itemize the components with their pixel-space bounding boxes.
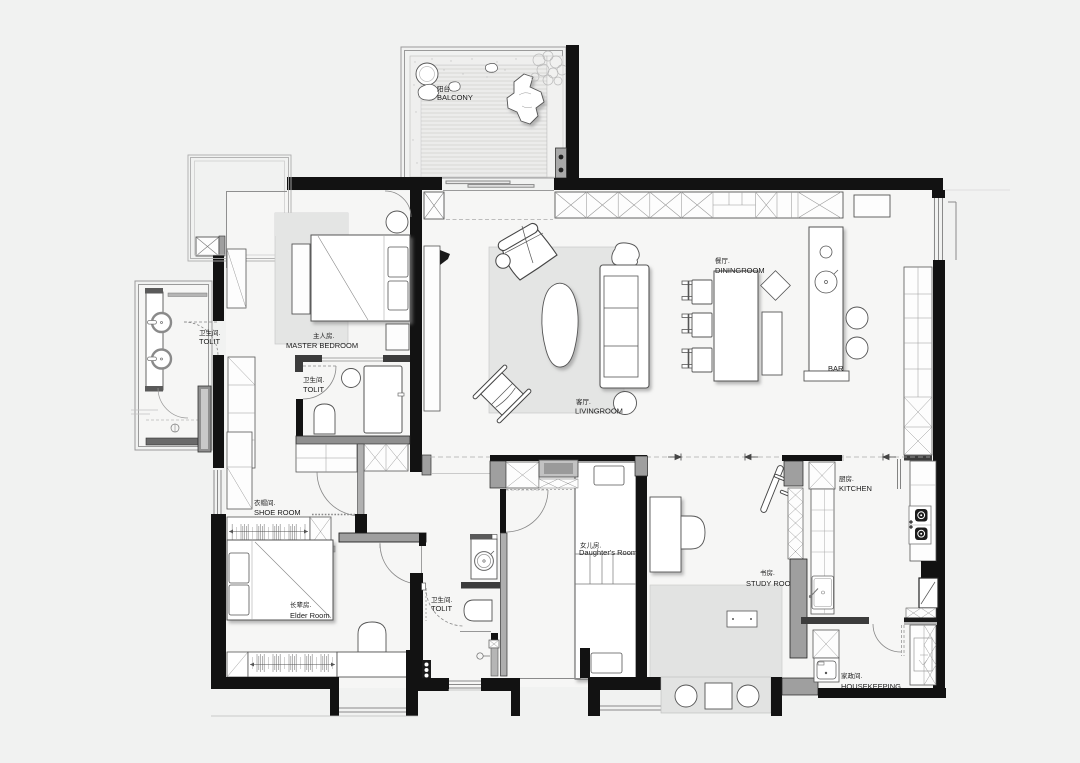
svg-text:Elder Room: Elder Room bbox=[290, 611, 330, 620]
svg-text:厨房.: 厨房. bbox=[839, 474, 854, 483]
svg-text:TOLIT: TOLIT bbox=[431, 604, 453, 613]
svg-text:书房.: 书房. bbox=[760, 568, 775, 577]
svg-text:TOLIT: TOLIT bbox=[199, 337, 221, 346]
svg-text:主人房.: 主人房. bbox=[313, 331, 335, 340]
svg-text:STUDY ROOM: STUDY ROOM bbox=[746, 579, 797, 588]
svg-text:KITCHEN: KITCHEN bbox=[839, 484, 872, 493]
svg-text:BALCONY: BALCONY bbox=[437, 93, 473, 102]
svg-text:卫生间.: 卫生间. bbox=[431, 595, 453, 604]
svg-text:客厅.: 客厅. bbox=[576, 397, 591, 406]
svg-text:餐厅.: 餐厅. bbox=[715, 256, 730, 265]
svg-text:MASTER BEDROOM: MASTER BEDROOM bbox=[286, 341, 358, 350]
svg-text:LIVINGROOM: LIVINGROOM bbox=[575, 407, 623, 416]
svg-text:长辈房.: 长辈房. bbox=[290, 600, 312, 609]
svg-text:SHOE ROOM: SHOE ROOM bbox=[254, 508, 301, 517]
svg-text:卫生间.: 卫生间. bbox=[199, 328, 221, 337]
svg-text:DININGROOM: DININGROOM bbox=[715, 266, 765, 275]
svg-text:衣帽间.: 衣帽间. bbox=[254, 498, 276, 507]
svg-text:Daughter's Room: Daughter's Room bbox=[579, 548, 637, 557]
svg-text:BAR: BAR bbox=[828, 364, 844, 373]
svg-text:阳台.: 阳台. bbox=[437, 84, 452, 93]
svg-text:卫生间.: 卫生间. bbox=[303, 375, 325, 384]
svg-text:家政间.: 家政间. bbox=[841, 671, 863, 680]
svg-text:TOLIT: TOLIT bbox=[303, 385, 325, 394]
